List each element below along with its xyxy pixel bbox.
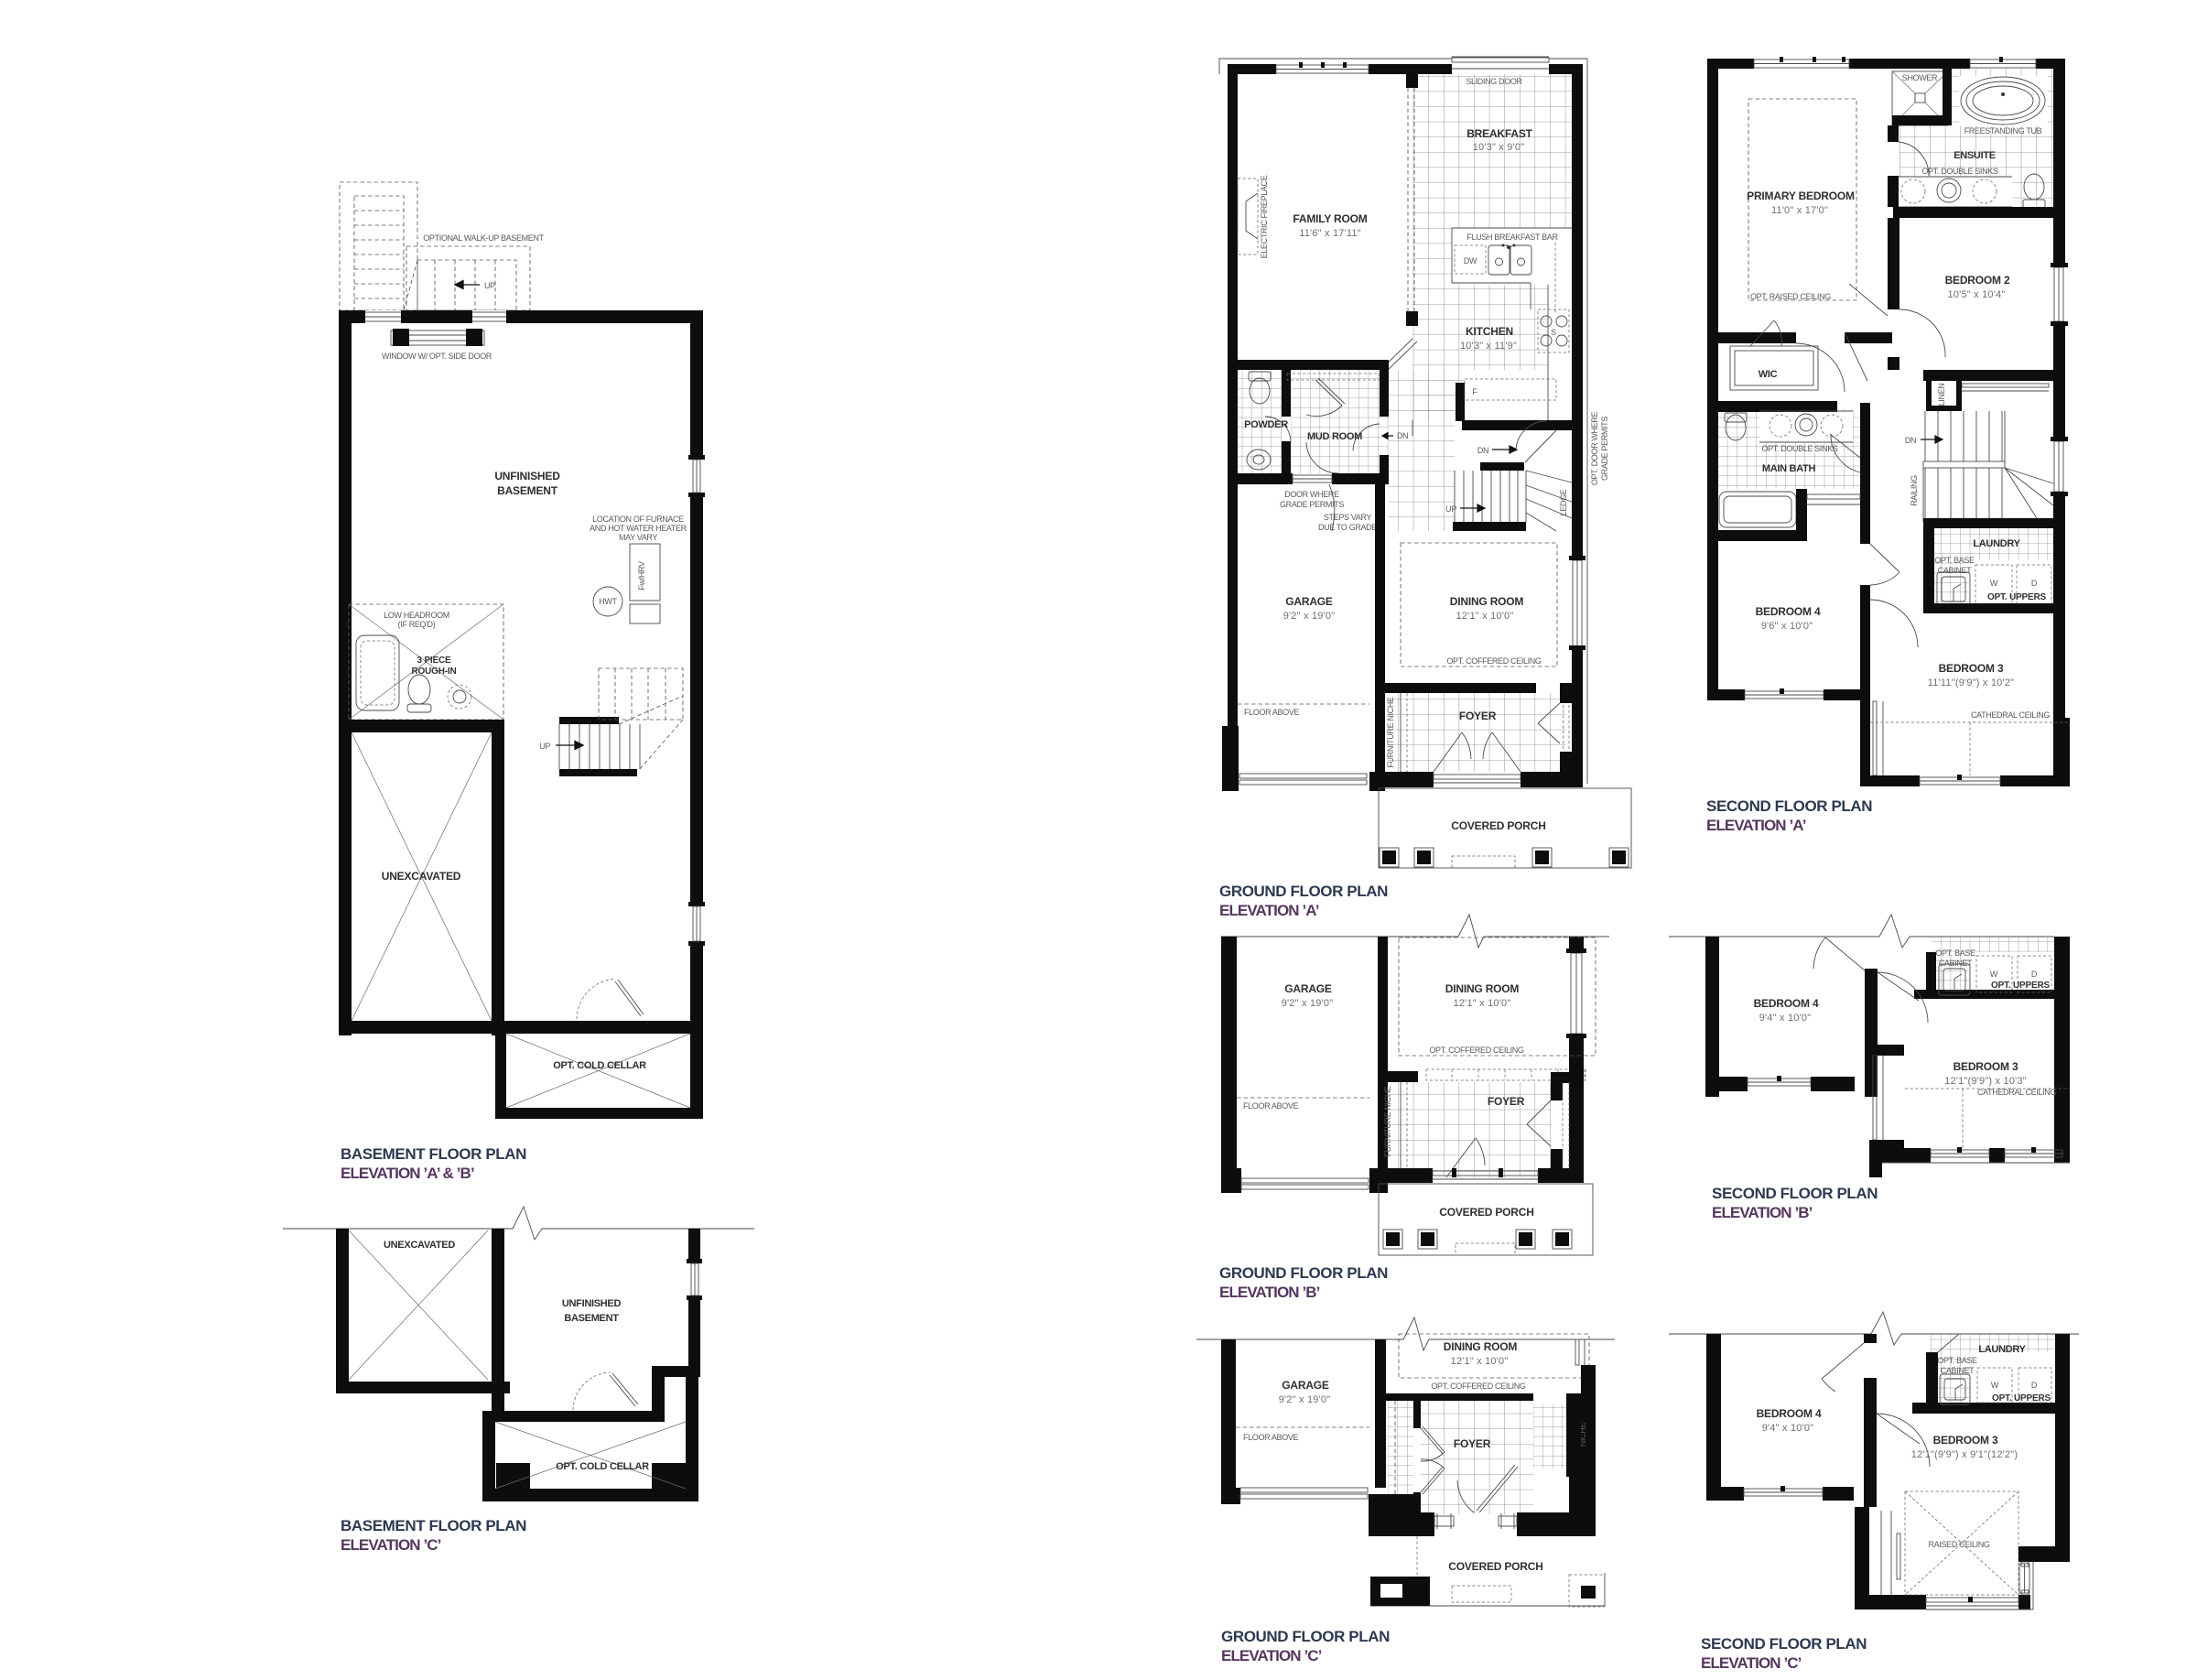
svg-text:10'5" x 10'4": 10'5" x 10'4" [1948,289,2006,300]
svg-text:BEDROOM 4: BEDROOM 4 [1756,605,1821,618]
svg-text:SECOND FLOOR PLAN: SECOND FLOOR PLAN [1712,1185,1878,1202]
svg-text:ELEVATION ’B’: ELEVATION ’B’ [1219,1284,1320,1301]
svg-text:Fw/HRV: Fw/HRV [637,561,646,591]
svg-text:ELEVATION ’A’: ELEVATION ’A’ [1219,902,1319,919]
svg-text:BASEMENT: BASEMENT [564,1313,619,1324]
svg-text:D: D [2031,1381,2038,1390]
svg-text:OPT. COFFERED CEILING: OPT. COFFERED CEILING [1431,1382,1526,1391]
svg-text:DUE TO GRADE: DUE TO GRADE [1318,523,1377,532]
svg-text:DINING ROOM: DINING ROOM [1445,982,1520,995]
svg-text:W: W [1990,579,1998,588]
svg-text:ELEVATION ’C’: ELEVATION ’C’ [1701,1654,1802,1672]
svg-text:CABINET: CABINET [1938,566,1972,575]
svg-text:OPTIONAL WALK-UP BASEMENT: OPTIONAL WALK-UP BASEMENT [423,233,544,243]
svg-text:UP: UP [484,281,495,290]
svg-text:CATHEDRAL CEILING: CATHEDRAL CEILING [1977,1088,2056,1097]
svg-text:MUD ROOM: MUD ROOM [1307,431,1362,442]
svg-text:OPT. COLD CELLAR: OPT. COLD CELLAR [556,1461,649,1472]
svg-text:SHOWER: SHOWER [1902,73,1938,82]
svg-text:ELEVATION ’A’ & ’B’: ELEVATION ’A’ & ’B’ [341,1165,474,1182]
svg-text:CABINET: CABINET [1939,959,1973,968]
svg-text:FAMILY ROOM: FAMILY ROOM [1293,212,1367,225]
svg-text:LOW HEADROOM: LOW HEADROOM [384,611,449,620]
svg-text:KITCHEN: KITCHEN [1466,325,1513,338]
svg-text:MAIN BATH: MAIN BATH [1762,463,1816,474]
svg-text:GROUND FLOOR PLAN: GROUND FLOOR PLAN [1219,1264,1388,1282]
svg-text:BASEMENT FLOOR PLAN: BASEMENT FLOOR PLAN [341,1145,526,1163]
svg-text:10'3" x 9'0": 10'3" x 9'0" [1473,142,1525,153]
svg-text:OPT. BASE: OPT. BASE [1934,556,1975,565]
svg-text:GROUND FLOOR PLAN: GROUND FLOOR PLAN [1219,883,1388,900]
svg-text:OPT. UPPERS: OPT. UPPERS [1987,592,2046,602]
svg-text:OPT. UPPERS: OPT. UPPERS [1992,1393,2051,1404]
svg-text:9'4" x 10'0": 9'4" x 10'0" [1759,1013,1812,1024]
svg-text:12'1"(9'9") x 9'1"(12'2"): 12'1"(9'9") x 9'1"(12'2") [1911,1449,2018,1460]
svg-text:ELEVATION ’A’: ELEVATION ’A’ [1706,817,1806,834]
svg-text:OPT. UPPERS: OPT. UPPERS [1991,981,2050,991]
svg-text:9'6" x 10'0": 9'6" x 10'0" [1761,621,1813,632]
svg-text:10'3" x 11'9": 10'3" x 11'9" [1460,341,1517,352]
svg-text:FREESTANDING TUB: FREESTANDING TUB [1964,126,2042,135]
svg-text:FLOOR ABOVE: FLOOR ABOVE [1243,1101,1299,1111]
svg-text:9'2" x 19'0": 9'2" x 19'0" [1279,1394,1331,1405]
svg-text:OPT. DOUBLE SINKS: OPT. DOUBLE SINKS [1921,167,1997,176]
svg-text:GARAGE: GARAGE [1285,595,1333,608]
svg-text:FOYER: FOYER [1454,1437,1491,1450]
svg-text:3 PIECE: 3 PIECE [417,656,451,666]
svg-text:DN: DN [1905,436,1916,445]
svg-text:FLOOR ABOVE: FLOOR ABOVE [1243,1433,1299,1442]
svg-text:ENSUITE: ENSUITE [1953,150,1996,161]
svg-text:ELEVATION ’B’: ELEVATION ’B’ [1712,1204,1813,1221]
svg-text:W: W [1990,970,1998,979]
svg-text:BEDROOM 3: BEDROOM 3 [1933,1434,1998,1447]
svg-text:GARAGE: GARAGE [1282,1379,1329,1392]
svg-text:DN: DN [1477,446,1488,455]
svg-text:LAUNDRY: LAUNDRY [1978,1344,2026,1355]
svg-text:LOCATION OF FURNACE: LOCATION OF FURNACE [592,515,684,524]
svg-text:STEPS VARY: STEPS VARY [1324,513,1372,522]
svg-text:GROUND FLOOR PLAN: GROUND FLOOR PLAN [1221,1628,1390,1645]
svg-text:FLUSH BREAKFAST BAR: FLUSH BREAKFAST BAR [1466,233,1558,242]
svg-text:OPT. COFFERED CEILING: OPT. COFFERED CEILING [1446,656,1542,666]
svg-text:UP: UP [1445,504,1456,514]
svg-text:F: F [1472,387,1477,396]
svg-text:FURNITURE NICHE: FURNITURE NICHE [1386,697,1395,768]
svg-text:FOYER: FOYER [1459,710,1497,722]
svg-text:DN: DN [1397,431,1408,440]
svg-text:UNFINISHED: UNFINISHED [494,470,560,482]
svg-text:SLIDING DOOR: SLIDING DOOR [1466,77,1522,86]
svg-text:12'1" x 10'0": 12'1" x 10'0" [1454,998,1511,1009]
svg-text:DW: DW [1464,256,1477,266]
svg-text:WINDOW W/ OPT. SIDE DOOR: WINDOW W/ OPT. SIDE DOOR [382,352,492,361]
svg-text:MAY VARY: MAY VARY [619,533,657,542]
svg-text:ELECTRIC FIREPLACE: ELECTRIC FIREPLACE [1260,175,1269,258]
svg-text:BEDROOM 4: BEDROOM 4 [1757,1407,1822,1420]
svg-text:POWDER: POWDER [1244,419,1288,430]
svg-text:BASEMENT FLOOR PLAN: BASEMENT FLOOR PLAN [341,1517,526,1534]
svg-text:OPT. RAISED CEILING: OPT. RAISED CEILING [1750,292,1831,301]
svg-text:OPT. BASE: OPT. BASE [1935,948,1975,958]
svg-text:RAILING: RAILING [1910,475,1919,506]
svg-text:WIC: WIC [1759,369,1778,380]
svg-text:OPT. BASE: OPT. BASE [1937,1356,1977,1365]
svg-text:(IF REQ'D): (IF REQ'D) [398,620,436,629]
svg-text:D: D [2031,579,2038,588]
svg-text:AND HOT WATER HEATER: AND HOT WATER HEATER [590,524,687,533]
svg-text:9'2" x 19'0": 9'2" x 19'0" [1282,998,1334,1009]
svg-text:BEDROOM 4: BEDROOM 4 [1754,997,1819,1010]
svg-text:FURNITURE NICHE: FURNITURE NICHE [1383,1086,1392,1157]
svg-text:COVERED PORCH: COVERED PORCH [1451,819,1545,832]
svg-text:12'1" x 10'0": 12'1" x 10'0" [1451,1356,1509,1367]
svg-text:SECOND FLOOR PLAN: SECOND FLOOR PLAN [1706,797,1872,815]
svg-text:LINEN: LINEN [1937,384,1946,406]
svg-text:OPT. DOUBLE SINKS: OPT. DOUBLE SINKS [1761,444,1837,453]
svg-text:9'2" x 19'0": 9'2" x 19'0" [1283,611,1336,622]
svg-text:D: D [2031,970,2038,979]
svg-text:COVERED PORCH: COVERED PORCH [1448,1560,1542,1573]
svg-text:UNFINISHED: UNFINISHED [562,1298,622,1309]
svg-text:UNEXCAVATED: UNEXCAVATED [382,870,461,883]
svg-text:11'11"(9'9") x 10'2": 11'11"(9'9") x 10'2" [1928,677,2014,688]
svg-text:ELEVATION ’C’: ELEVATION ’C’ [341,1536,441,1554]
svg-text:RAISED CEILING: RAISED CEILING [1928,1540,1989,1549]
svg-text:9'4" x 10'0": 9'4" x 10'0" [1762,1423,1814,1434]
svg-text:PRIMARY BEDROOM: PRIMARY BEDROOM [1747,190,1855,202]
svg-text:SECOND FLOOR PLAN: SECOND FLOOR PLAN [1701,1635,1867,1653]
svg-text:11'0" x 17'0": 11'0" x 17'0" [1771,205,1828,216]
svg-text:DINING ROOM: DINING ROOM [1444,1340,1518,1353]
svg-text:UP: UP [539,742,550,751]
svg-text:UNEXCAVATED: UNEXCAVATED [384,1240,455,1251]
svg-text:BEDROOM 2: BEDROOM 2 [1945,274,2010,287]
svg-text:LEDGE: LEDGE [1559,489,1568,515]
svg-text:11'6" x 17'11": 11'6" x 17'11" [1299,228,1361,239]
svg-text:BEDROOM 3: BEDROOM 3 [1953,1060,2018,1073]
svg-text:FOYER: FOYER [1488,1095,1525,1108]
svg-text:OPT. COLD CELLAR: OPT. COLD CELLAR [553,1060,646,1071]
svg-text:GRADE PERMITS: GRADE PERMITS [1600,417,1609,481]
svg-text:LAUNDRY: LAUNDRY [1973,538,2020,549]
svg-text:W: W [1991,1381,1999,1390]
svg-text:S: S [1551,328,1556,337]
svg-text:COVERED PORCH: COVERED PORCH [1439,1206,1533,1219]
svg-text:HWT: HWT [599,597,617,606]
svg-text:OPT. DOOR WHERE: OPT. DOOR WHERE [1590,412,1599,486]
svg-text:BREAKFAST: BREAKFAST [1466,127,1532,140]
svg-text:BASEMENT: BASEMENT [497,484,558,497]
svg-text:GARAGE: GARAGE [1284,982,1332,995]
svg-text:BEDROOM 3: BEDROOM 3 [1939,662,2004,675]
svg-text:DINING ROOM: DINING ROOM [1450,595,1524,608]
svg-text:FLOOR ABOVE: FLOOR ABOVE [1244,708,1300,717]
svg-text:OPT. COFFERED CEILING: OPT. COFFERED CEILING [1429,1046,1524,1055]
svg-text:ELEVATION ’C’: ELEVATION ’C’ [1221,1647,1322,1664]
svg-text:CABINET: CABINET [1941,1366,1975,1375]
svg-text:12'1"(9'9") x 10'3": 12'1"(9'9") x 10'3" [1944,1076,2027,1087]
svg-text:CATHEDRAL CEILING: CATHEDRAL CEILING [1971,710,2050,720]
svg-text:ROUGH-IN: ROUGH-IN [412,667,457,677]
svg-text:12'1" x 10'0": 12'1" x 10'0" [1456,611,1514,622]
